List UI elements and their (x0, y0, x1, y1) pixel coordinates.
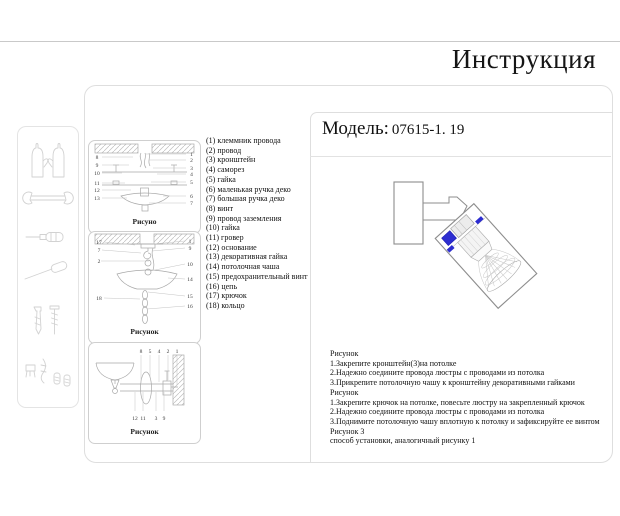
glass-bowl (96, 363, 134, 394)
svg-text:8: 8 (140, 349, 143, 355)
gloves-icon (32, 144, 64, 178)
bracket-bars (102, 165, 187, 196)
svg-text:18: 18 (96, 296, 102, 302)
svg-text:11: 11 (140, 416, 146, 422)
product-drawing (385, 168, 570, 351)
part-item: (12) основание (206, 243, 308, 253)
svg-text:7: 7 (98, 248, 101, 254)
svg-text:1: 1 (189, 239, 192, 245)
small-fasteners-icon (26, 359, 70, 386)
svg-text:9: 9 (163, 416, 166, 422)
ceiling-hatch (95, 144, 194, 153)
model-separator (310, 156, 611, 157)
svg-text:8: 8 (96, 155, 99, 161)
instruction-line: Рисунок (330, 388, 600, 398)
svg-text:2: 2 (167, 349, 170, 355)
ceiling-bowl (117, 270, 177, 289)
part-item: (4) саморез (206, 165, 308, 175)
svg-text:10: 10 (187, 262, 193, 268)
svg-text:14: 14 (187, 277, 193, 283)
part-item: (11) гровер (206, 233, 308, 243)
instruction-line: 2.Надежно соедините провода люстры с про… (330, 368, 600, 378)
parts-list: (1) клеммник провода (2) провод (3) крон… (206, 136, 308, 311)
svg-text:9: 9 (189, 246, 192, 252)
part-item: (14) потолочная чаша (206, 262, 308, 272)
instruction-line: 3.Поднимите потолочную чашу вплотную к п… (330, 417, 600, 427)
svg-text:4: 4 (190, 172, 193, 178)
part-item: (7) большая ручка деко (206, 194, 308, 204)
tools-icons-drawing (18, 127, 78, 407)
svg-text:17: 17 (96, 240, 102, 246)
wall-hatch (173, 355, 184, 405)
part-item: (15) предохранительный винт (206, 272, 308, 282)
wrench-icon (23, 192, 74, 204)
svg-text:3: 3 (155, 416, 158, 422)
part-item: (13) декоративная гайка (206, 252, 308, 262)
page-title: Инструкция (452, 44, 596, 75)
instruction-line: способ установки, аналогичный рисунку 1 (330, 436, 600, 446)
instruction-line: 2.Надежно соедините провода люстры с про… (330, 407, 600, 417)
part-item: (9) провод заземления (206, 214, 308, 224)
model-label: Модель: (322, 118, 389, 139)
svg-text:2: 2 (190, 158, 193, 164)
part-item: (10) гайка (206, 223, 308, 233)
part-item: (18) кольцо (206, 301, 308, 311)
instruction-line: 3.Прикрепите потолочную чашу к кронштейн… (330, 378, 600, 388)
diagram-2-hook-mount: 17 7 2 18 1 9 10 14 15 16 Рисунок (88, 231, 201, 344)
instruction-line: 1.Закрепите крючок на потолке, повесьте … (330, 398, 600, 408)
diagram-2-label: Рисунок (89, 327, 200, 336)
svg-text:7: 7 (190, 201, 193, 207)
part-item: (5) гайка (206, 175, 308, 185)
diagram-3-callouts: 8 5 4 2 1 12 11 3 9 (132, 349, 178, 422)
svg-text:5: 5 (149, 349, 152, 355)
part-item: (17) крючок (206, 291, 308, 301)
required-tools-panel (17, 126, 79, 408)
wires (140, 153, 150, 168)
svg-text:12: 12 (94, 188, 100, 194)
part-item: (16) цепь (206, 282, 308, 292)
diagram-1-label: Рисуно (89, 217, 200, 226)
svg-text:5: 5 (190, 180, 193, 186)
leader-lines (102, 154, 186, 203)
header-rule (0, 41, 620, 42)
diagram-3-wall-mount: 8 5 4 2 1 12 11 3 9 Рисунок (88, 342, 201, 444)
part-item: (2) провод (206, 146, 308, 156)
model-number: 07615-1. 19 (392, 122, 465, 138)
part-item: (6) маленькая ручка деко (206, 185, 308, 195)
instruction-line: Рисунок 3 (330, 427, 600, 437)
svg-text:11: 11 (94, 181, 100, 187)
assembly-instructions: Рисунок 1.Закрепите кронштейн(3)на потол… (330, 349, 600, 446)
svg-text:13: 13 (94, 196, 100, 202)
base-plate (394, 182, 423, 244)
dowel-and-screw-icon (34, 306, 59, 334)
screwdriver-icon (26, 233, 63, 242)
diagram-3-label: Рисунок (89, 427, 200, 436)
svg-text:6: 6 (190, 194, 193, 200)
svg-text:12: 12 (132, 416, 138, 422)
diagram-1-bracket-mount: 8 9 10 11 12 13 1 2 3 4 5 6 7 Рисуно (88, 140, 201, 234)
instruction-line: Рисунок (330, 349, 600, 359)
svg-text:15: 15 (187, 294, 193, 300)
model-header: Модель:07615-1. 19 (322, 118, 464, 140)
svg-text:9: 9 (96, 163, 99, 169)
part-item: (1) клеммник провода (206, 136, 308, 146)
svg-text:2: 2 (98, 259, 101, 265)
chain (143, 291, 148, 324)
part-item: (3) кронштейн (206, 155, 308, 165)
svg-text:10: 10 (94, 171, 100, 177)
long-screwdriver-icon (25, 261, 68, 279)
spotlight-technical-drawing (385, 168, 570, 346)
instruction-sheet: Инструкция (0, 0, 620, 516)
part-item: (8) винт (206, 204, 308, 214)
arm-and-plate (115, 371, 178, 404)
svg-text:1: 1 (176, 349, 179, 355)
instruction-line: 1.Закрепите кронштейн(3)на потолке (330, 359, 600, 369)
svg-text:16: 16 (187, 304, 193, 310)
svg-text:4: 4 (158, 349, 161, 355)
